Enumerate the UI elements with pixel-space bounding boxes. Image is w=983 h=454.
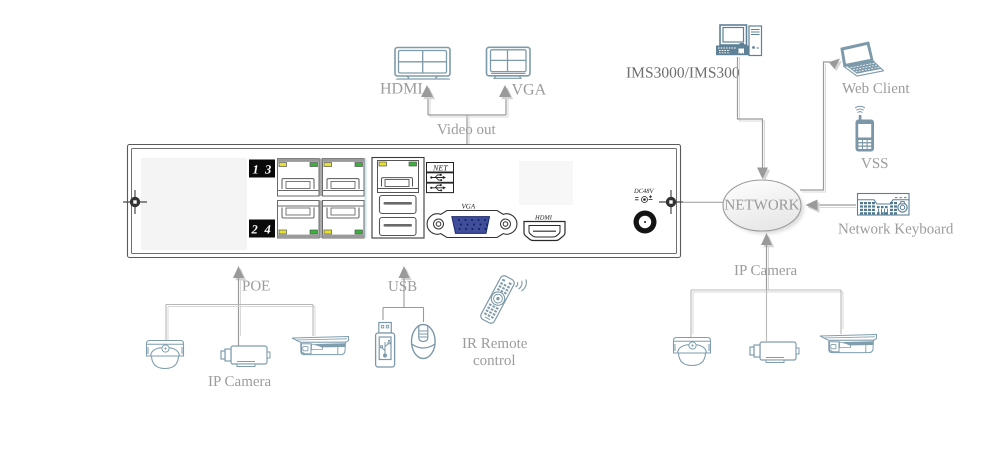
svg-text:control: control xyxy=(473,353,516,369)
svg-text:1: 1 xyxy=(253,163,259,177)
svg-text:IP Camera: IP Camera xyxy=(208,374,272,390)
svg-text:Web Client: Web Client xyxy=(842,81,910,97)
svg-text:HDMI: HDMI xyxy=(380,81,423,98)
svg-text:IP Camera: IP Camera xyxy=(734,263,798,279)
svg-text:4: 4 xyxy=(264,223,271,237)
svg-text:DC48V: DC48V xyxy=(633,188,655,195)
svg-text:POE: POE xyxy=(242,279,270,295)
svg-text:VGA: VGA xyxy=(512,82,547,99)
svg-text:NET: NET xyxy=(432,164,448,173)
svg-text:IR Remote: IR Remote xyxy=(462,336,528,352)
svg-text:VSS: VSS xyxy=(861,156,889,172)
svg-text:USB: USB xyxy=(388,279,417,295)
svg-text:Network Keyboard: Network Keyboard xyxy=(838,222,954,238)
svg-text:Video out: Video out xyxy=(437,122,497,138)
svg-text:2: 2 xyxy=(251,223,258,237)
svg-text:VGA: VGA xyxy=(462,203,476,211)
svg-text:3: 3 xyxy=(264,163,271,177)
svg-text:IMS3000/IMS300: IMS3000/IMS300 xyxy=(626,65,740,82)
svg-text:NETWORK: NETWORK xyxy=(725,198,800,214)
svg-text:HDMI: HDMI xyxy=(534,215,553,222)
